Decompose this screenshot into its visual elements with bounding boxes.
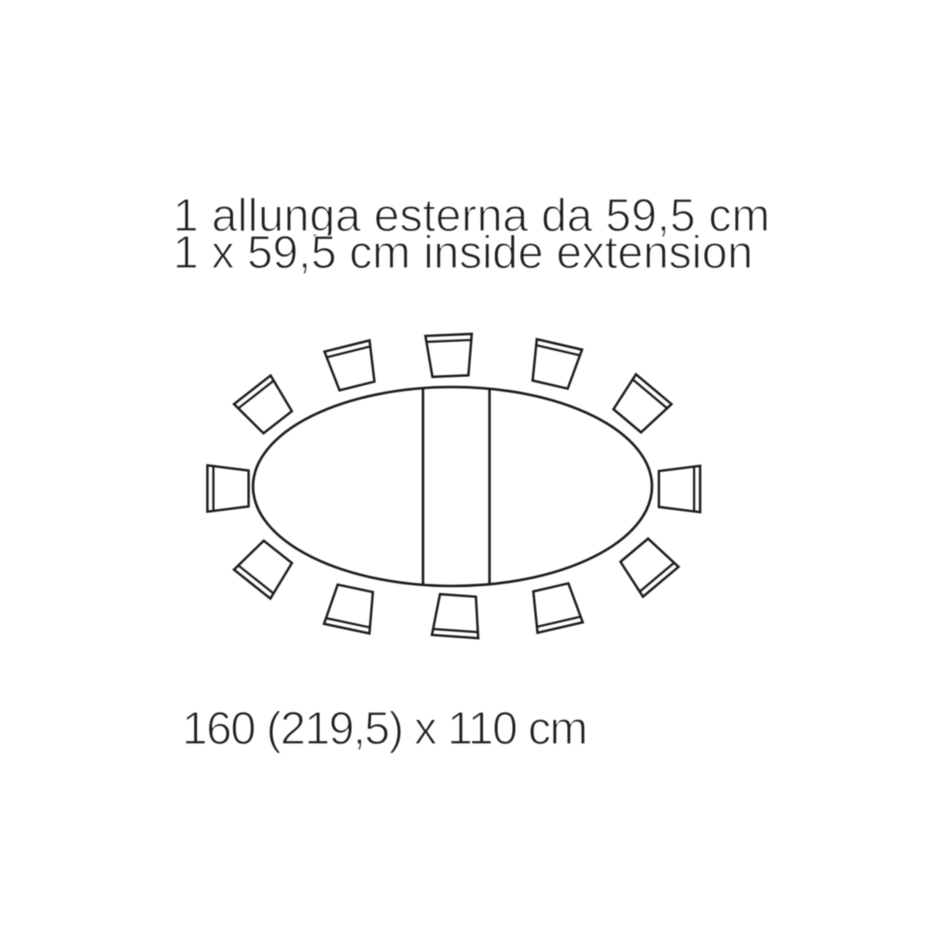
svg-text:160 (219,5) x 110 cm: 160 (219,5) x 110 cm bbox=[182, 702, 588, 754]
svg-text:1 x 59,5 cm inside extension: 1 x 59,5 cm inside extension bbox=[173, 226, 753, 278]
